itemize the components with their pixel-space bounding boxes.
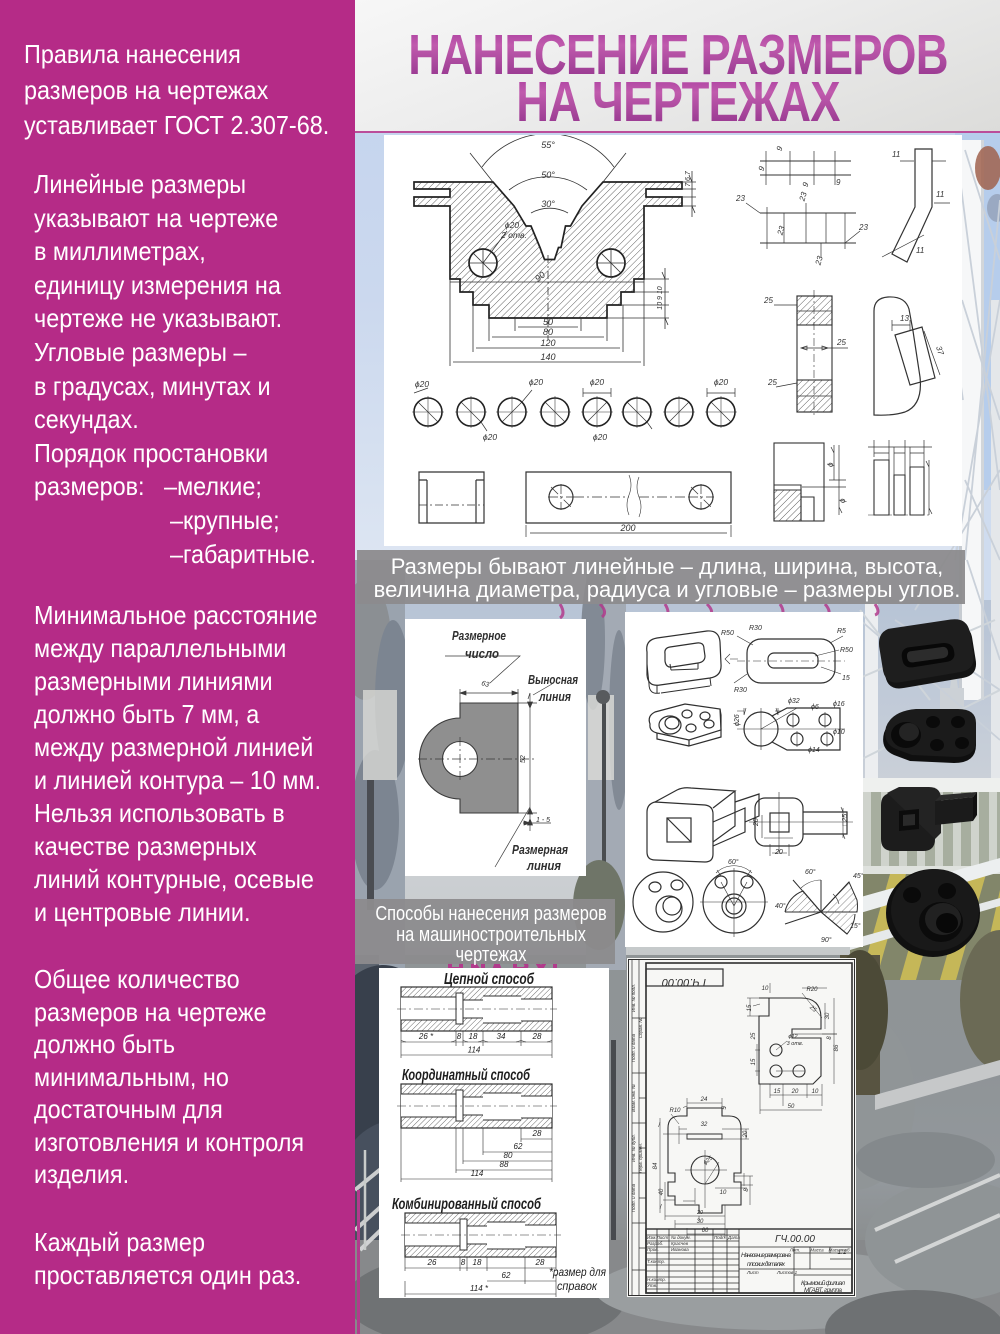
svg-text:15°: 15° xyxy=(850,922,861,930)
svg-text:ϕ6: ϕ6 xyxy=(811,704,819,711)
svg-text:Красчев: Красчев xyxy=(671,1241,689,1246)
svg-text:ϕ16: ϕ16 xyxy=(833,701,845,708)
svg-text:Подп. и дата: Подп. и дата xyxy=(631,1033,636,1062)
svg-text:Утв.: Утв. xyxy=(647,1283,657,1288)
svg-text:Выносная: Выносная xyxy=(528,673,579,687)
svg-text:10: 10 xyxy=(762,986,769,992)
svg-text:140: 140 xyxy=(540,352,555,362)
svg-text:линия: линия xyxy=(526,859,561,873)
svg-text:Изм.Лист: Изм.Лист xyxy=(647,1235,668,1240)
svg-text:Размерная: Размерная xyxy=(512,843,569,857)
svg-text:50: 50 xyxy=(543,317,553,327)
svg-text:Комбинированный способ: Комбинированный способ xyxy=(392,1196,541,1213)
svg-text:Лист: Лист xyxy=(746,1270,759,1275)
svg-text:25: 25 xyxy=(836,338,846,347)
svg-text:24: 24 xyxy=(700,1097,708,1103)
svg-text:2 отв.: 2 отв. xyxy=(500,230,527,240)
svg-text:ϕ20: ϕ20 xyxy=(714,377,728,387)
svg-text:23: 23 xyxy=(813,255,824,267)
svg-text:28: 28 xyxy=(532,1129,542,1138)
svg-text:Крымский филиал: Крымский филиал xyxy=(801,1279,845,1287)
svg-text:R20: R20 xyxy=(806,987,818,993)
svg-text:13: 13 xyxy=(900,314,909,323)
svg-text:ГЧ.00.00: ГЧ.00.00 xyxy=(775,1234,815,1245)
svg-text:Пров.: Пров. xyxy=(647,1247,659,1252)
svg-text:ϕ26: ϕ26 xyxy=(734,714,741,726)
svg-text:11: 11 xyxy=(936,190,944,199)
svg-text:ϕ14: ϕ14 xyxy=(808,747,820,754)
svg-text:28: 28 xyxy=(532,1032,542,1041)
svg-text:30°: 30° xyxy=(541,199,555,209)
svg-text:ГЧ.00.00: ГЧ.00.00 xyxy=(661,976,706,988)
svg-text:ϕ20: ϕ20 xyxy=(505,220,519,230)
svg-text:20: 20 xyxy=(774,849,783,856)
svg-text:Разраб.: Разраб. xyxy=(647,1241,663,1246)
svg-text:80: 80 xyxy=(504,1151,513,1160)
svg-text:ϕ12: ϕ12 xyxy=(788,1034,797,1040)
svg-text:114 *: 114 * xyxy=(470,1284,489,1293)
svg-text:Перв. примен.: Перв. примен. xyxy=(638,1143,643,1173)
svg-text:63: 63 xyxy=(480,680,489,689)
svg-text:Размерное: Размерное xyxy=(452,629,506,643)
svg-text:8: 8 xyxy=(461,1258,466,1267)
svg-text:84: 84 xyxy=(653,1162,659,1169)
svg-text:23: 23 xyxy=(775,225,786,237)
svg-text:90°: 90° xyxy=(821,936,832,944)
svg-text:25: 25 xyxy=(807,1004,817,1014)
svg-text:18: 18 xyxy=(473,1258,482,1267)
svg-text:Листов 1: Листов 1 xyxy=(776,1270,798,1275)
svg-text:*размер для: *размер для xyxy=(549,1265,606,1279)
svg-text:9: 9 xyxy=(801,180,811,188)
svg-text:60°: 60° xyxy=(728,858,739,866)
svg-text:Взам. инв. №: Взам. инв. № xyxy=(631,1084,636,1112)
svg-text:Н.контр.: Н.контр. xyxy=(647,1277,666,1282)
svg-text:120: 120 xyxy=(540,338,555,348)
svg-text:Подп. и дата: Подп. и дата xyxy=(631,1183,636,1212)
svg-text:52: 52 xyxy=(520,755,527,763)
svg-text:1 - 5: 1 - 5 xyxy=(536,817,550,824)
svg-text:20: 20 xyxy=(791,1089,799,1095)
svg-text:ϕ20: ϕ20 xyxy=(593,432,607,442)
svg-text:ϕ20: ϕ20 xyxy=(415,379,429,389)
svg-text:3 отв.: 3 отв. xyxy=(787,1041,804,1047)
svg-text:ϕ: ϕ xyxy=(838,498,847,503)
svg-text:11: 11 xyxy=(916,246,924,255)
svg-text:60°: 60° xyxy=(805,868,816,876)
svg-text:ϕ10: ϕ10 xyxy=(833,729,845,736)
svg-text:Масштаб: Масштаб xyxy=(828,1248,849,1253)
svg-text:справок: справок xyxy=(557,1279,598,1293)
svg-text:15: 15 xyxy=(751,1058,757,1065)
svg-text:ϕ20: ϕ20 xyxy=(529,377,543,387)
svg-text:114: 114 xyxy=(471,1169,484,1178)
svg-text:40°: 40° xyxy=(775,902,786,910)
svg-text:26 *: 26 * xyxy=(418,1032,434,1041)
svg-text:10: 10 xyxy=(720,1190,727,1196)
svg-text:8: 8 xyxy=(827,1036,833,1040)
svg-text:45°: 45° xyxy=(853,872,863,880)
svg-text:114: 114 xyxy=(468,1046,481,1055)
svg-text:Дата: Дата xyxy=(727,1235,740,1240)
svg-text:R10: R10 xyxy=(669,1108,681,1114)
svg-text:Инв. № дубл.: Инв. № дубл. xyxy=(631,1134,636,1162)
svg-text:число: число xyxy=(465,647,499,661)
svg-text:18: 18 xyxy=(469,1032,478,1041)
svg-text:Инв. № подл.: Инв. № подл. xyxy=(631,984,636,1012)
svg-text:ϕ32: ϕ32 xyxy=(788,698,800,705)
svg-text:плоских деталях: плоских деталях xyxy=(747,1260,786,1268)
svg-text:40: 40 xyxy=(659,1188,665,1195)
svg-text:10 9 10: 10 9 10 xyxy=(657,286,664,309)
svg-text:37: 37 xyxy=(934,345,945,357)
svg-text:26: 26 xyxy=(427,1258,437,1267)
svg-text:30: 30 xyxy=(825,1012,831,1019)
svg-text:□25: □25 xyxy=(842,814,849,826)
svg-text:80: 80 xyxy=(543,327,553,337)
svg-text:25: 25 xyxy=(751,1032,757,1040)
svg-text:25: 25 xyxy=(767,378,777,387)
svg-text:Подп.: Подп. xyxy=(714,1235,726,1240)
svg-text:62: 62 xyxy=(514,1142,523,1151)
svg-text:32: 32 xyxy=(701,1122,708,1128)
svg-text:28: 28 xyxy=(535,1258,545,1267)
svg-text:ϕ20: ϕ20 xyxy=(590,377,604,387)
svg-text:Координатный способ: Координатный способ xyxy=(402,1067,530,1084)
svg-text:R50: R50 xyxy=(840,647,853,654)
svg-text:11: 11 xyxy=(892,150,900,159)
svg-text:МГАВТ, группа: МГАВТ, группа xyxy=(804,1287,842,1294)
svg-text:R30: R30 xyxy=(749,625,762,632)
svg-text:88: 88 xyxy=(500,1160,509,1169)
svg-text:23: 23 xyxy=(797,191,808,203)
svg-text:Нанесение размеров на: Нанесение размеров на xyxy=(741,1252,791,1259)
svg-text:9: 9 xyxy=(775,144,785,152)
svg-text:50°: 50° xyxy=(541,170,555,180)
svg-text:Справ. №: Справ. № xyxy=(638,1018,643,1039)
svg-text:10: 10 xyxy=(812,1089,819,1095)
svg-text:ϕ: ϕ xyxy=(826,462,835,467)
svg-text:20: 20 xyxy=(753,818,760,827)
svg-text:55°: 55° xyxy=(541,140,555,150)
svg-text:9: 9 xyxy=(757,164,767,172)
svg-text:линия: линия xyxy=(538,690,571,704)
svg-text:Лит.: Лит. xyxy=(789,1248,801,1253)
svg-text:R50: R50 xyxy=(721,630,734,637)
svg-text:86: 86 xyxy=(834,1044,840,1051)
svg-text:20: 20 xyxy=(696,1210,704,1216)
svg-text:№ докум.: № докум. xyxy=(671,1235,691,1240)
svg-text:20: 20 xyxy=(743,1130,749,1138)
svg-text:15: 15 xyxy=(747,1004,753,1011)
svg-text:8: 8 xyxy=(457,1032,462,1041)
svg-text:Цепной способ: Цепной способ xyxy=(444,971,534,988)
svg-text:23: 23 xyxy=(858,223,868,232)
svg-text:34: 34 xyxy=(497,1032,506,1041)
svg-text:8: 8 xyxy=(744,1188,750,1192)
svg-text:ϕ25: ϕ25 xyxy=(703,1155,715,1166)
svg-text:9: 9 xyxy=(836,178,841,187)
svg-text:Т.контр.: Т.контр. xyxy=(647,1259,665,1264)
svg-text:15: 15 xyxy=(842,675,850,682)
svg-text:R5: R5 xyxy=(837,628,846,635)
svg-text:Масса: Масса xyxy=(810,1248,824,1253)
svg-text:R30: R30 xyxy=(734,687,747,694)
svg-text:15: 15 xyxy=(774,1089,781,1095)
svg-text:25: 25 xyxy=(763,296,773,305)
svg-text:62: 62 xyxy=(502,1271,511,1280)
svg-text:200: 200 xyxy=(619,523,635,533)
svg-text:ϕ20: ϕ20 xyxy=(483,432,497,442)
svg-text:7 6 7: 7 6 7 xyxy=(685,170,692,187)
svg-text:30: 30 xyxy=(697,1219,704,1225)
svg-text:23: 23 xyxy=(735,194,745,203)
svg-text:50: 50 xyxy=(788,1104,795,1110)
svg-text:Иванова: Иванова xyxy=(671,1247,689,1252)
